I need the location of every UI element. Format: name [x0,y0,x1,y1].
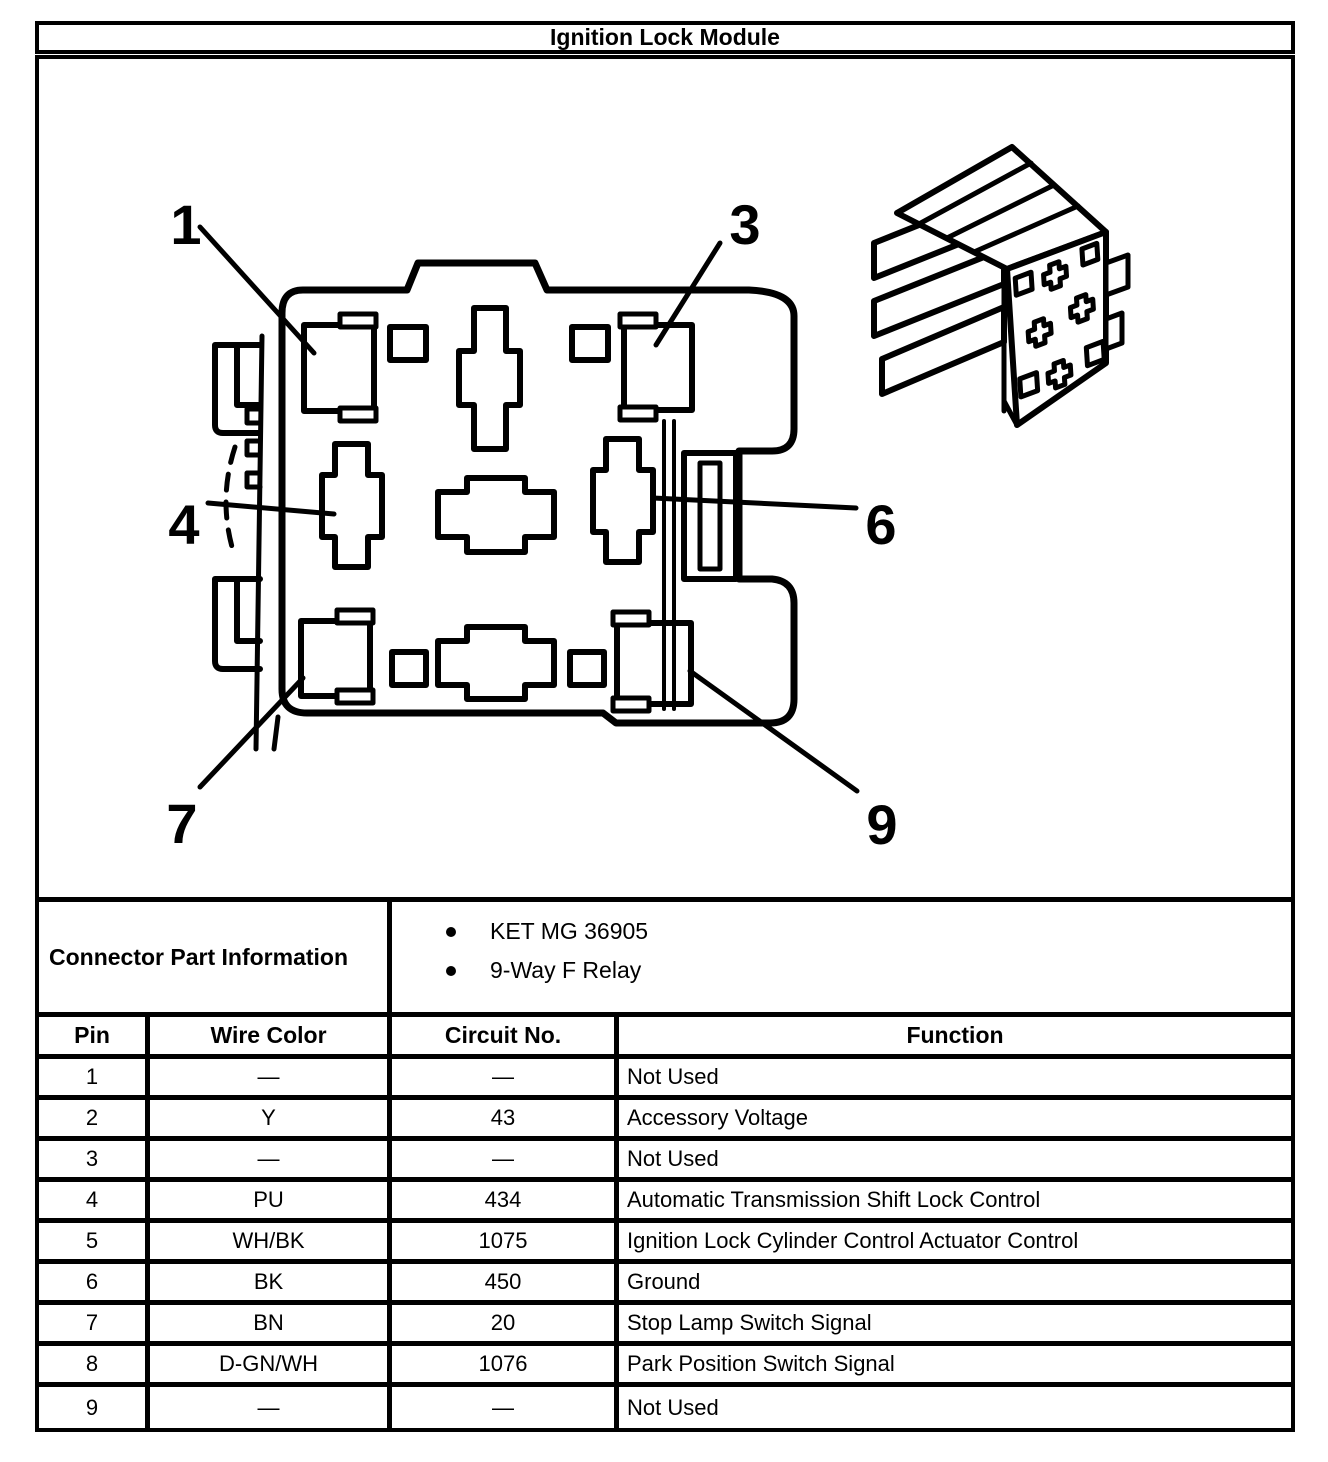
pin-7-cavity [301,621,370,696]
function-cell: Automatic Transmission Shift Lock Contro… [619,1182,1291,1218]
wire-color-cell: — [150,1141,392,1177]
header-circuit-no: Circuit No. [392,1017,619,1054]
function-cell: Not Used [619,1059,1291,1095]
wire-color-cell: — [150,1059,392,1095]
wire-color-cell: BK [150,1264,392,1300]
circuit-no-cell: 1075 [392,1223,619,1259]
bullet-icon [446,927,456,937]
function-cell: Park Position Switch Signal [619,1346,1291,1382]
wire-color-cell: WH/BK [150,1223,392,1259]
keying-slot [570,652,604,685]
content-box: 1 3 4 6 7 9 [35,55,1295,1432]
latch-tab [620,314,656,327]
table-row: 7 BN 20 Stop Lamp Switch Signal [39,1305,1291,1346]
wire-color-cell: Y [150,1100,392,1136]
pin-cell: 4 [39,1182,150,1218]
circuit-no-cell: — [392,1141,619,1177]
hidden-edge-dashed [226,447,235,557]
function-cell: Not Used [619,1141,1291,1177]
service-manual-page: Ignition Lock Module [0,0,1328,1462]
circuit-no-cell: 20 [392,1305,619,1341]
latch-tab [337,690,373,703]
latch-tab [337,610,373,623]
part-info-bullets: KET MG 36905 9-Way F Relay [392,902,1291,1012]
wire-color-cell: D-GN/WH [150,1346,392,1382]
table-row: 6 BK 450 Ground [39,1264,1291,1305]
keying-slot [572,327,608,360]
callout-4: 4 [168,493,199,556]
pin-cell: 6 [39,1264,150,1300]
circuit-no-cell: — [392,1059,619,1095]
latch-tab [340,408,376,421]
function-cell: Not Used [619,1387,1291,1428]
pin-cell: 7 [39,1305,150,1341]
pin-6-cavity [593,439,653,562]
latch-tab [613,698,649,711]
callout-9: 9 [866,793,897,856]
table-row: 3 — — Not Used [39,1141,1291,1182]
title-bar: Ignition Lock Module [35,21,1295,54]
function-cell: Ignition Lock Cylinder Control Actuator … [619,1223,1291,1259]
pin-cell: 8 [39,1346,150,1382]
pin-2-cavity [459,308,520,449]
header-function: Function [619,1017,1291,1054]
connector-type: 9-Way F Relay [490,957,641,984]
function-cell: Stop Lamp Switch Signal [619,1305,1291,1341]
table-row: 2 Y 43 Accessory Voltage [39,1100,1291,1141]
pin-4-cavity [322,444,382,567]
circuit-no-cell: 434 [392,1182,619,1218]
connector-info-tables: Connector Part Information KET MG 36905 … [39,897,1291,1428]
leader-line-9 [690,671,857,791]
latch-tab [620,407,656,420]
circuit-no-cell: — [392,1387,619,1428]
leader-line-3 [656,243,720,345]
callout-labels: 1 3 4 6 7 9 [166,193,897,856]
table-row: 4 PU 434 Automatic Transmission Shift Lo… [39,1182,1291,1223]
connector-diagram-area: 1 3 4 6 7 9 [39,59,1291,897]
callout-7: 7 [166,792,197,855]
pin-5-cavity [438,478,554,552]
callout-3: 3 [729,193,760,256]
table-row: 8 D-GN/WH 1076 Park Position Switch Sign… [39,1346,1291,1387]
pin-cell: 1 [39,1059,150,1095]
right-slot-tab [684,453,736,579]
keying-slot [392,652,426,685]
keying-slot [390,327,426,360]
part-info-row: Connector Part Information KET MG 36905 … [39,902,1291,1017]
latch-tab [613,612,649,625]
callout-6: 6 [865,493,896,556]
pin-8-cavity [438,627,554,699]
leader-line-7 [200,678,303,787]
page-title: Ignition Lock Module [550,24,780,51]
wire-color-cell: — [150,1387,392,1428]
header-pin: Pin [39,1017,150,1054]
table-row: 9 — — Not Used [39,1387,1291,1428]
left-hook-top-inner [237,347,260,405]
pin-1-cavity [304,325,374,411]
circuit-no-cell: 43 [392,1100,619,1136]
pin-cell: 9 [39,1387,150,1428]
function-cell: Ground [619,1264,1291,1300]
latch-tab [340,314,376,327]
part-info-label: Connector Part Information [39,902,392,1012]
header-wire-color: Wire Color [150,1017,392,1054]
pin-cell: 5 [39,1223,150,1259]
wire-color-cell: PU [150,1182,392,1218]
connector-face-diagram [200,227,857,791]
rail-line-outer [256,336,262,749]
wire-color-cell: BN [150,1305,392,1341]
connector-pinout-svg: 1 3 4 6 7 9 [39,59,1291,897]
side-tab [1106,255,1128,295]
circuit-no-cell: 1076 [392,1346,619,1382]
circuit-no-cell: 450 [392,1264,619,1300]
pin-cell: 3 [39,1141,150,1177]
bullet-item: 9-Way F Relay [446,957,1291,984]
side-tab [1106,313,1122,349]
function-cell: Accessory Voltage [619,1100,1291,1136]
connector-document: Ignition Lock Module [35,21,1295,1432]
pin-cell: 2 [39,1100,150,1136]
rail-line-inner [274,717,278,749]
part-number: KET MG 36905 [490,918,648,945]
connector-3d-view [874,147,1128,425]
rail-notch [247,409,260,423]
pinout-table-header: Pin Wire Color Circuit No. Function [39,1017,1291,1059]
bullet-item: KET MG 36905 [446,918,1291,945]
table-row: 1 — — Not Used [39,1059,1291,1100]
table-row: 5 WH/BK 1075 Ignition Lock Cylinder Cont… [39,1223,1291,1264]
bullet-icon [446,966,456,976]
pin-9-cavity [617,623,691,704]
callout-1: 1 [170,193,201,256]
